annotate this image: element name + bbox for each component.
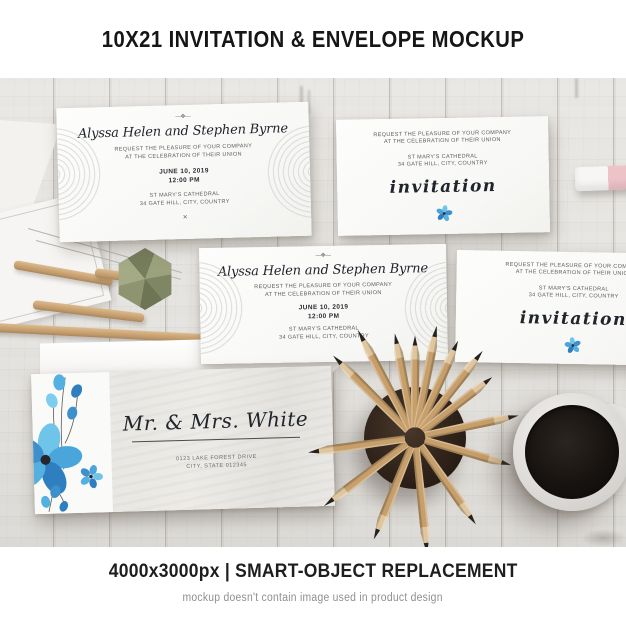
photo-scene: —❖— Alyssa Helen and Stephen Byrne REQUE… <box>0 78 626 547</box>
request-line: AT THE CELEBRATION OF THEIR UNION <box>265 289 382 299</box>
envelope-city: CITY, STATE 012345 <box>186 461 247 471</box>
invitation-card-names-2: —❖— Alyssa Helen and Stephen Byrne REQUE… <box>199 244 448 364</box>
blue-flower-icon <box>435 204 452 221</box>
wood-grime-mark <box>575 78 578 98</box>
couple-names-script: Alyssa Helen and Stephen Byrne <box>218 261 428 280</box>
event-time: 12:00 PM <box>168 176 200 186</box>
ornament-divider: —❖— <box>315 252 330 259</box>
invitation-script: invitation <box>520 308 626 330</box>
venue-address: 34 GATE HILL, CITY, COUNTRY <box>529 292 619 301</box>
couple-names-script: Alyssa Helen and Stephen Byrne <box>78 121 288 141</box>
coffee-mug <box>513 393 626 511</box>
mockup-title: 10X21 INVITATION & ENVELOPE MOCKUP <box>102 26 524 53</box>
icosahedron-object <box>115 248 175 310</box>
invitation-card-script-1: REQUEST THE PLEASURE OF YOUR COMPANY AT … <box>336 116 550 236</box>
event-date: JUNE 10, 2019 <box>299 303 349 313</box>
envelope-address-block: Mr. & Mrs. White 0123 LAKE FOREST DRIVE … <box>109 366 323 512</box>
event-time: 12:00 PM <box>308 312 340 322</box>
request-line: AT THE CELEBRATION OF THEIR UNION <box>516 269 626 279</box>
mockup-preview: 10X21 INVITATION & ENVELOPE MOCKUP —❖— A… <box>0 0 626 626</box>
recipient-script: Mr. & Mrs. White <box>122 406 308 435</box>
watercolor-flowers-icon <box>31 372 113 514</box>
venue-address: 34 GATE HILL, CITY, COUNTRY <box>140 198 230 208</box>
invitation-script: invitation <box>390 176 497 198</box>
eraser <box>575 165 626 191</box>
disclaimer-text: mockup doesn't contain image used in pro… <box>183 592 443 604</box>
specs-text: 4000x3000px | SMART-OBJECT REPLACEMENT <box>109 561 518 583</box>
top-banner: 10X21 INVITATION & ENVELOPE MOCKUP <box>0 0 626 78</box>
venue-address: 34 GATE HILL, CITY, COUNTRY <box>279 333 369 342</box>
coffee-surface <box>525 405 619 499</box>
invitation-card-script-2: REQUEST THE PLEASURE OF YOUR COMPANY AT … <box>455 250 626 366</box>
venue-address: 34 GATE HILL, CITY, COUNTRY <box>398 160 488 169</box>
floral-decoration <box>31 372 113 514</box>
cross-ornament: ✕ <box>183 214 188 221</box>
bottom-banner: 4000x3000px | SMART-OBJECT REPLACEMENT m… <box>0 547 626 626</box>
envelope: Mr. & Mrs. White 0123 LAKE FOREST DRIVE … <box>31 366 335 514</box>
invitation-card-names-1: —❖— Alyssa Helen and Stephen Byrne REQUE… <box>56 102 311 243</box>
lace-ornament-right <box>265 122 312 220</box>
request-line: AT THE CELEBRATION OF THEIR UNION <box>384 137 501 147</box>
ornament-divider: —❖— <box>175 113 190 120</box>
pencil-cup <box>364 387 466 489</box>
recipient-underline <box>132 436 300 442</box>
blue-flower-icon <box>564 336 581 353</box>
